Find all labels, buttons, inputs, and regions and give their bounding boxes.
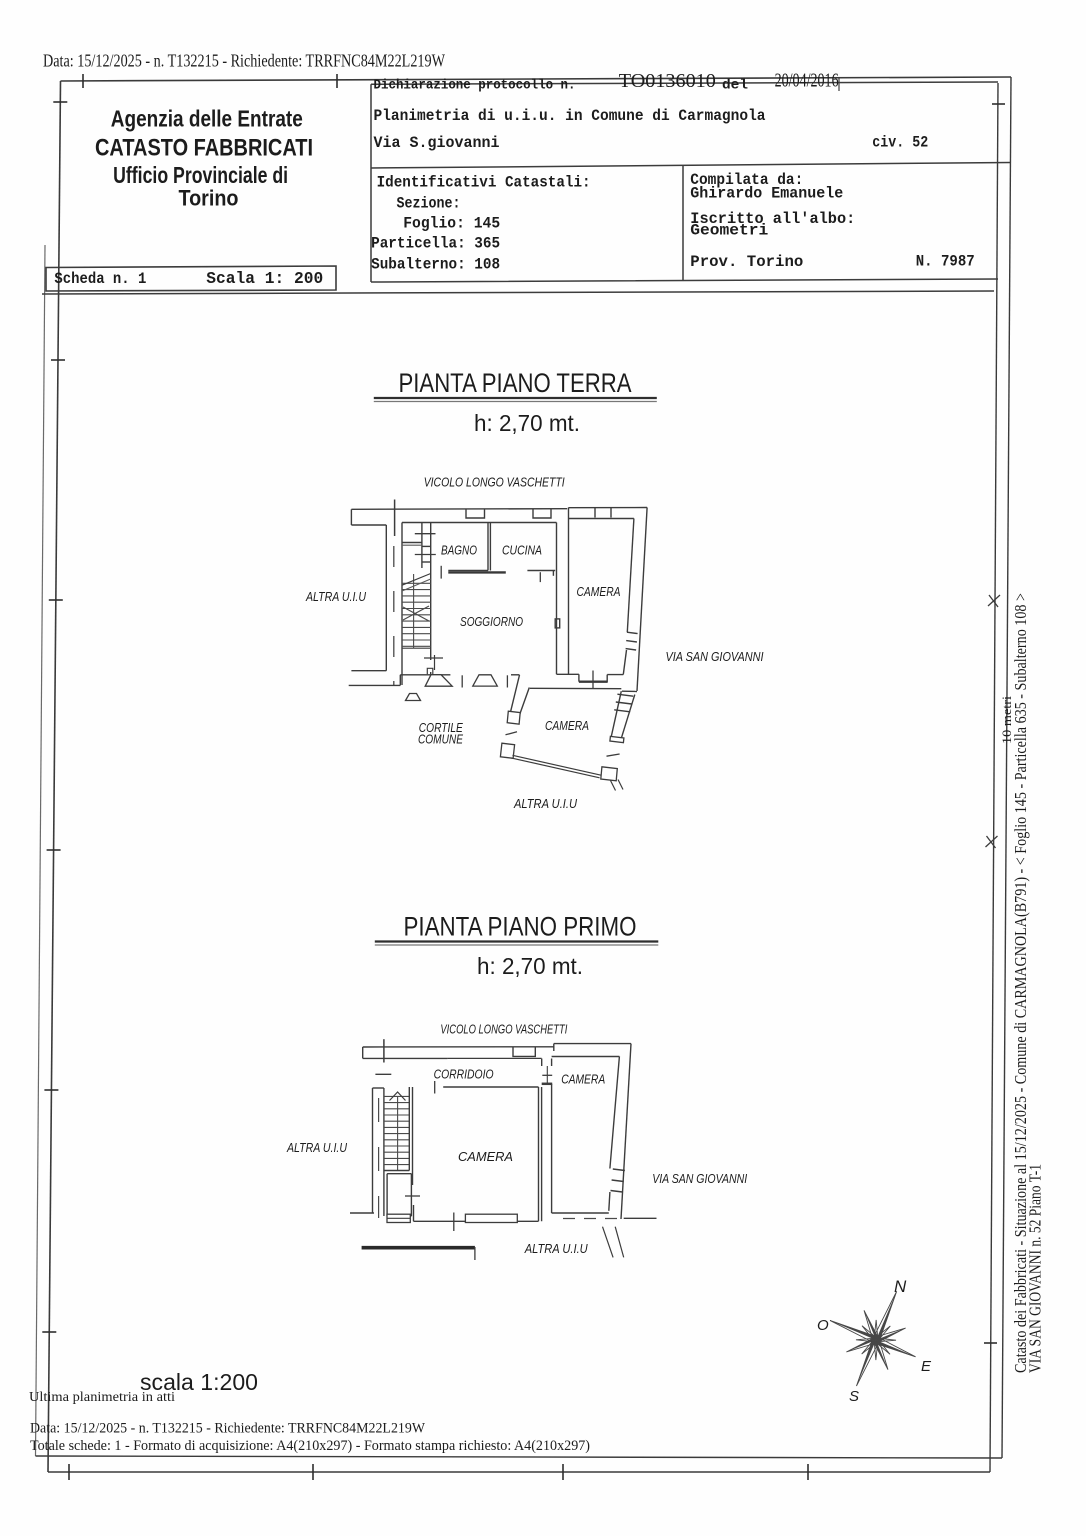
svg-text:20/04/2016: 20/04/2016 xyxy=(775,70,839,92)
svg-text:O: O xyxy=(817,1317,829,1334)
svg-text:Dichiarazione protocollo n.: Dichiarazione protocollo n. xyxy=(374,78,576,94)
svg-text:CORRIDOIO: CORRIDOIO xyxy=(434,1067,494,1081)
svg-text:BAGNO: BAGNO xyxy=(441,543,477,557)
svg-text:N. 7987: N. 7987 xyxy=(916,253,975,271)
svg-text:Prov. Torino: Prov. Torino xyxy=(690,253,803,271)
svg-text:Subalterno: 108: Subalterno: 108 xyxy=(371,255,500,273)
svg-text:N: N xyxy=(894,1277,907,1296)
svg-text:VIA SAN GIOVANNI n. 52 Piano T: VIA SAN GIOVANNI n. 52 Piano T-1 xyxy=(1026,1164,1045,1373)
svg-text:S: S xyxy=(849,1388,859,1405)
svg-text:PIANTA PIANO PRIMO: PIANTA PIANO PRIMO xyxy=(404,912,637,942)
svg-text:Foglio: 145: Foglio: 145 xyxy=(403,214,500,232)
svg-text:Totale schede: 1 - Formato di: Totale schede: 1 - Formato di acquisizio… xyxy=(30,1438,590,1454)
svg-text:Ufficio Provinciale di: Ufficio Provinciale di xyxy=(113,162,288,188)
svg-text:Ultima planimetria in atti: Ultima planimetria in atti xyxy=(29,1390,175,1405)
svg-text:del: del xyxy=(722,79,748,94)
svg-text:civ. 52: civ. 52 xyxy=(872,133,928,151)
svg-text:Ghirardo Emanuele: Ghirardo Emanuele xyxy=(690,185,843,203)
svg-text:ALTRA U.I.U: ALTRA U.I.U xyxy=(513,797,578,811)
svg-text:Scala 1: 200: Scala 1: 200 xyxy=(206,270,323,289)
svg-text:Data: 15/12/2025 - n. T132215: Data: 15/12/2025 - n. T132215 - Richiede… xyxy=(30,1421,426,1437)
svg-text:Torino: Torino xyxy=(179,186,239,211)
svg-text:Agenzia delle Entrate: Agenzia delle Entrate xyxy=(111,106,303,132)
svg-text:TO0136010: TO0136010 xyxy=(619,70,716,92)
svg-text:CAMERA: CAMERA xyxy=(458,1150,513,1164)
svg-text:CATASTO FABBRICATI: CATASTO FABBRICATI xyxy=(95,135,313,162)
svg-text:E: E xyxy=(921,1358,932,1375)
svg-text:Geometri: Geometri xyxy=(690,222,768,240)
svg-text:Planimetria di u.i.u. in Comun: Planimetria di u.i.u. in Comune di Carma… xyxy=(374,107,766,125)
svg-text:ALTRA U.I.U: ALTRA U.I.U xyxy=(305,590,367,604)
svg-text:h: 2,70 mt.: h: 2,70 mt. xyxy=(474,410,580,436)
svg-text:10 metri: 10 metri xyxy=(999,696,1014,744)
svg-text:VICOLO LONGO VASCHETTI: VICOLO LONGO VASCHETTI xyxy=(440,1022,567,1037)
svg-text:Sezione:: Sezione: xyxy=(397,195,461,213)
svg-text:Particella: 365: Particella: 365 xyxy=(371,234,500,252)
svg-text:VIA SAN GIOVANNI: VIA SAN GIOVANNI xyxy=(652,1172,747,1186)
svg-text:VICOLO LONGO VASCHETTI: VICOLO LONGO VASCHETTI xyxy=(424,474,565,489)
svg-text:VIA SAN GIOVANNI: VIA SAN GIOVANNI xyxy=(666,650,764,664)
svg-text:ALTRA U.I.U: ALTRA U.I.U xyxy=(524,1242,589,1256)
svg-text:CAMERA: CAMERA xyxy=(561,1073,605,1087)
svg-text:ALTRA U.I.U: ALTRA U.I.U xyxy=(286,1141,348,1155)
svg-text:SOGGIORNO: SOGGIORNO xyxy=(460,615,523,629)
svg-text:Data: 15/12/2025 - n. T132215: Data: 15/12/2025 - n. T132215 - Richiede… xyxy=(43,51,445,71)
svg-text:h: 2,70 mt.: h: 2,70 mt. xyxy=(477,953,583,979)
svg-text:Via S.giovanni: Via S.giovanni xyxy=(374,134,500,152)
svg-text:COMUNE: COMUNE xyxy=(418,733,464,747)
svg-text:Identificativi Catastali:: Identificativi Catastali: xyxy=(377,174,591,192)
svg-text:Scheda n. 1: Scheda n. 1 xyxy=(54,270,146,288)
svg-text:CAMERA: CAMERA xyxy=(577,585,621,599)
svg-text:CUCINA: CUCINA xyxy=(502,543,542,557)
svg-text:CAMERA: CAMERA xyxy=(545,719,589,733)
svg-text:PIANTA PIANO TERRA: PIANTA PIANO TERRA xyxy=(399,368,632,398)
